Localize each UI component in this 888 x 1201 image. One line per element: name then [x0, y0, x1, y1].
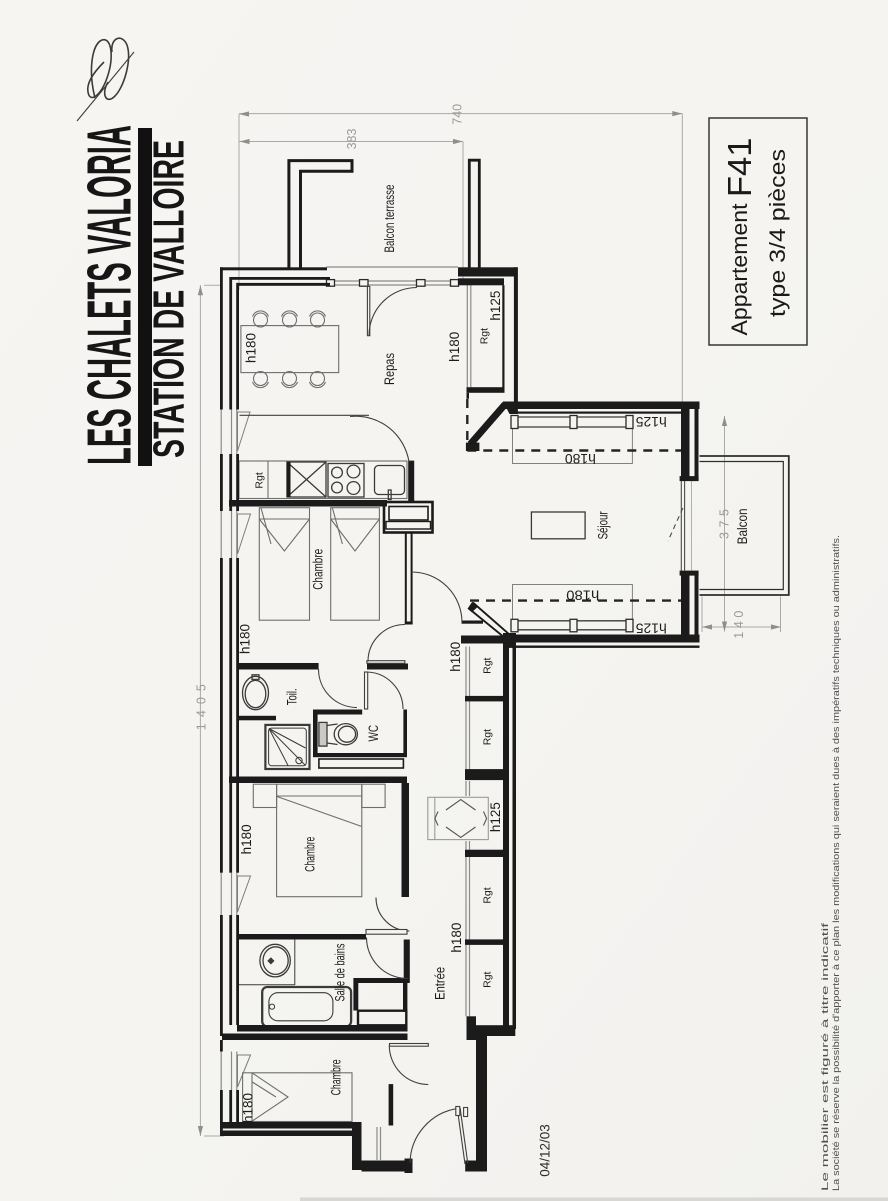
- svg-text:Rgt: Rgt: [482, 887, 494, 903]
- svg-text:h180: h180: [448, 642, 463, 672]
- svg-text:La société se réserve la possi: La société se réserve la possibilité d'a…: [831, 535, 841, 1191]
- svg-text:Balcon terrasse: Balcon terrasse: [382, 185, 397, 253]
- svg-text:140: 140: [732, 611, 746, 639]
- svg-text:Chambre: Chambre: [303, 837, 318, 872]
- svg-text:383: 383: [345, 129, 359, 150]
- svg-text:Salle de bains: Salle de bains: [332, 943, 347, 1001]
- svg-text:740: 740: [451, 104, 465, 125]
- svg-text:Toil.: Toil.: [285, 688, 300, 705]
- svg-text:Chambre: Chambre: [329, 1059, 344, 1095]
- svg-text:type 3/4 pièces: type 3/4 pièces: [765, 149, 790, 317]
- svg-text:Rgt: Rgt: [482, 729, 494, 745]
- svg-text:h125: h125: [636, 414, 667, 429]
- svg-text:Rgt: Rgt: [253, 472, 265, 488]
- svg-text:h125: h125: [488, 291, 503, 321]
- svg-text:Rgt: Rgt: [482, 657, 494, 673]
- svg-text:h180: h180: [447, 332, 462, 362]
- svg-text:WC: WC: [366, 725, 381, 742]
- svg-text:Le mobilier est figuré à titre: Le mobilier est figuré à titre indicatif: [820, 922, 830, 1191]
- svg-text:375: 375: [718, 509, 732, 539]
- svg-text:h180: h180: [566, 587, 599, 602]
- svg-text:h180: h180: [237, 624, 252, 654]
- svg-text:h125: h125: [636, 620, 667, 635]
- svg-text:Séjour: Séjour: [596, 511, 611, 539]
- svg-text:Balcon: Balcon: [735, 508, 750, 544]
- svg-text:h180: h180: [565, 451, 596, 466]
- svg-text:Entrée: Entrée: [433, 967, 448, 1000]
- svg-text:h180: h180: [449, 923, 464, 953]
- svg-text:Rgt: Rgt: [482, 971, 494, 987]
- svg-text:h180: h180: [240, 1093, 255, 1123]
- svg-text:Repas: Repas: [382, 353, 397, 385]
- svg-text:Chambre: Chambre: [310, 549, 325, 590]
- svg-text:h180: h180: [239, 824, 254, 854]
- svg-text:h180: h180: [244, 333, 259, 363]
- svg-text:LES CHALETS VALORIA: LES CHALETS VALORIA: [76, 125, 145, 465]
- svg-text:04/12/03: 04/12/03: [538, 1124, 553, 1177]
- svg-text:Rgt: Rgt: [478, 328, 490, 344]
- svg-text:h125: h125: [488, 802, 503, 832]
